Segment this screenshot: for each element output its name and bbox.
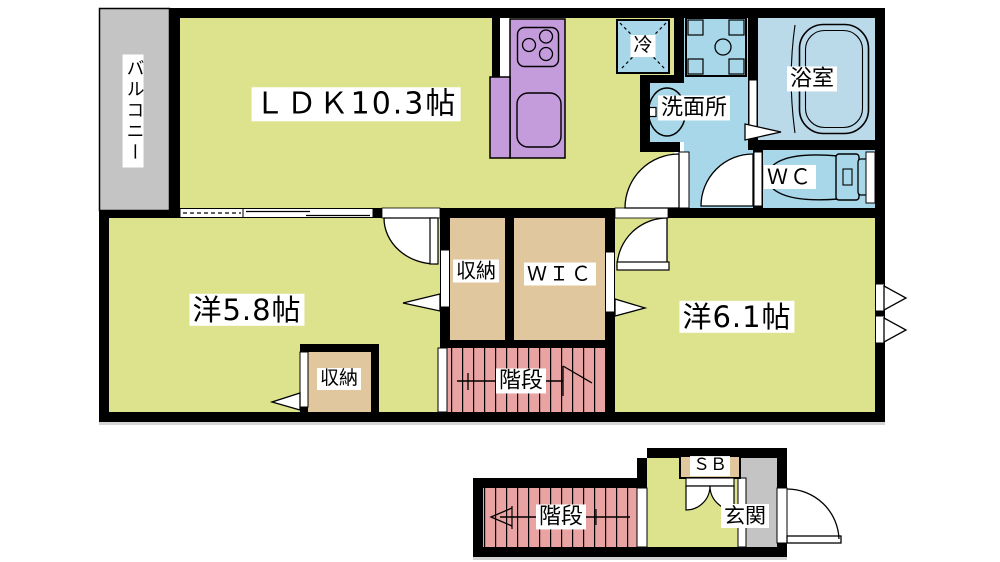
wall <box>777 448 787 488</box>
entrance-label: 玄関 <box>721 504 769 528</box>
shoe-box-doorway <box>686 478 734 486</box>
door-leaf <box>430 218 438 264</box>
wall <box>640 142 680 152</box>
closet-b-label: 収納 <box>317 368 361 390</box>
balcony-label: バルコニー <box>123 55 144 168</box>
entrance-doorway <box>777 488 787 543</box>
washing-machine-pan <box>686 18 746 76</box>
wall <box>640 83 650 142</box>
wall <box>99 412 885 422</box>
wall <box>300 407 308 412</box>
shoe-box-label: ＳＢ <box>690 456 730 476</box>
wall <box>170 8 180 218</box>
window-arrow <box>884 318 906 342</box>
wall <box>473 478 647 488</box>
kitchen-gap <box>500 18 510 77</box>
closet-doorway <box>441 250 450 307</box>
sliding-door-symbol <box>243 209 373 218</box>
wall <box>473 478 483 557</box>
doorway <box>615 208 668 218</box>
window <box>876 284 885 311</box>
entrance-door-arc <box>787 489 839 539</box>
bathroom-label: 浴室 <box>787 66 837 91</box>
closet-doorway <box>300 352 308 407</box>
wall <box>99 210 109 422</box>
wic-label: ＷＩＣ <box>524 263 596 286</box>
door-leaf <box>617 262 669 270</box>
wc-doorway <box>754 152 762 206</box>
floor-plan: バルコニー ＬＤＫ10.3帖 冷 洗面所 浴室 ＷＣ 洋5.8帖 収納 収納 Ｗ… <box>0 0 1000 562</box>
washroom-label: 洗面所 <box>658 95 730 120</box>
wall <box>371 344 379 412</box>
wall <box>674 18 684 75</box>
kitchen-counter-icon <box>490 18 565 158</box>
closet-a-label: 収納 <box>453 260 499 283</box>
stairs-opening <box>637 488 647 547</box>
wall <box>473 547 787 557</box>
wall <box>492 18 500 77</box>
wc-window <box>866 152 875 203</box>
washing-machine-icon <box>686 18 746 76</box>
wall <box>668 208 885 218</box>
wall-shadow <box>99 422 885 425</box>
wall <box>777 543 787 557</box>
entrance-door-leaf <box>787 536 841 543</box>
wall <box>440 340 615 348</box>
western-room-6-1-label: 洋6.1帖 <box>679 301 794 333</box>
stairs-upper-label: 階段 <box>496 368 546 393</box>
doorway <box>382 208 440 218</box>
wic-doorway <box>606 252 615 312</box>
window-arrow <box>884 286 906 310</box>
wall <box>440 208 615 218</box>
wc-label: ＷＣ <box>764 165 816 189</box>
wall <box>637 458 647 488</box>
wall <box>170 8 885 18</box>
wall <box>505 218 514 340</box>
toilet-flush <box>843 169 852 185</box>
wall <box>300 344 379 352</box>
kitchen-counter-side <box>490 77 510 158</box>
wall <box>99 210 180 218</box>
western-room-5-8-label: 洋5.8帖 <box>189 294 304 326</box>
wall <box>748 140 885 150</box>
doorway <box>679 152 689 208</box>
window <box>876 316 885 343</box>
stairs-lower-label: 階段 <box>536 504 586 529</box>
refrigerator-label: 冷 <box>630 35 655 57</box>
ldk-label: ＬＤＫ10.3帖 <box>252 87 461 121</box>
floor-plan-drawing <box>0 0 1000 562</box>
first-floor <box>473 448 841 560</box>
stairs-opening <box>438 348 447 412</box>
wall <box>605 218 615 412</box>
wall <box>640 75 684 83</box>
wall-shadow <box>473 557 787 560</box>
